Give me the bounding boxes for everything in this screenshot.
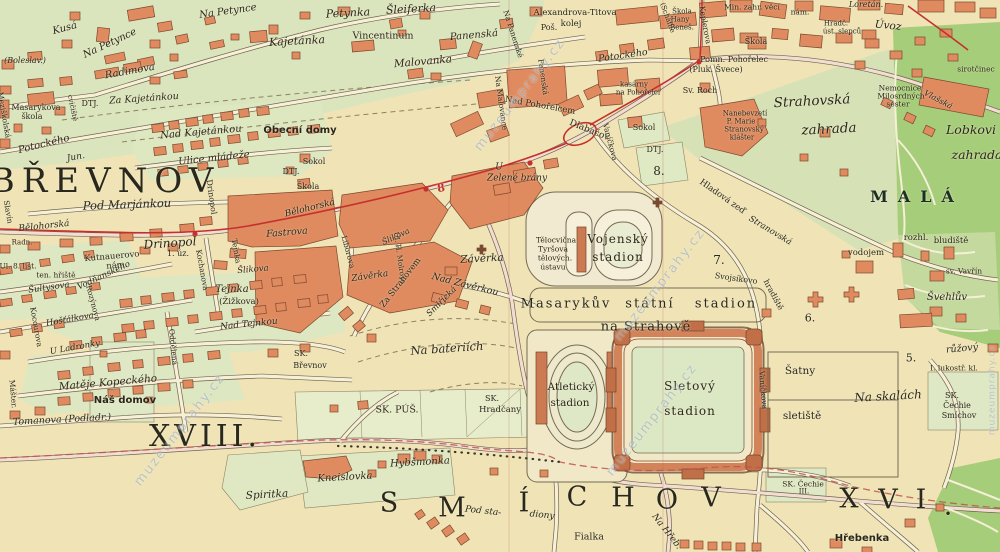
building — [820, 129, 830, 137]
building — [218, 159, 229, 167]
building — [158, 356, 171, 365]
building — [635, 78, 660, 93]
building — [885, 3, 904, 15]
building — [210, 311, 223, 320]
building — [918, 0, 944, 12]
building — [890, 51, 902, 59]
building — [865, 39, 879, 48]
building — [856, 261, 873, 273]
building — [286, 167, 294, 174]
building — [308, 124, 321, 133]
building — [862, 547, 872, 552]
building — [169, 120, 180, 129]
building — [248, 131, 259, 140]
building — [948, 54, 958, 61]
building — [752, 543, 761, 551]
building — [0, 298, 12, 307]
building — [35, 407, 45, 415]
building — [619, 43, 634, 54]
building — [272, 278, 283, 287]
building — [62, 40, 72, 48]
building — [597, 68, 628, 88]
building — [358, 401, 369, 410]
building — [936, 504, 944, 511]
building — [58, 397, 70, 406]
building — [694, 541, 703, 549]
building — [758, 119, 766, 126]
building — [930, 271, 944, 281]
building — [158, 383, 170, 392]
building — [90, 237, 102, 245]
building-block — [507, 66, 568, 108]
building — [921, 251, 929, 261]
building — [22, 294, 33, 302]
building — [83, 393, 93, 402]
building — [184, 290, 195, 299]
building — [800, 34, 823, 48]
building — [120, 298, 133, 307]
building — [20, 262, 31, 270]
building — [178, 165, 189, 173]
building — [83, 367, 94, 376]
sletovy-stadion-field — [632, 347, 744, 453]
building — [32, 324, 43, 332]
building — [530, 7, 542, 16]
building — [150, 40, 160, 48]
building — [842, 251, 850, 258]
building — [338, 7, 350, 15]
building — [108, 362, 121, 371]
building — [912, 69, 922, 77]
building — [14, 124, 22, 132]
building — [157, 21, 172, 32]
building — [186, 117, 199, 126]
building — [398, 454, 410, 463]
building — [988, 344, 998, 352]
building — [300, 344, 310, 352]
building-block — [339, 183, 448, 248]
building — [210, 137, 221, 146]
map-graphics — [0, 0, 1000, 552]
building — [730, 0, 752, 12]
building — [830, 539, 842, 548]
map-canvas: KusáNa PetynceNa Petynce(Boleslav.)Radim… — [0, 0, 1000, 552]
building — [133, 386, 143, 395]
building — [712, 28, 735, 42]
building — [254, 305, 267, 314]
building — [431, 73, 441, 80]
building — [54, 320, 65, 328]
building — [55, 107, 65, 115]
building — [158, 168, 169, 176]
building — [100, 351, 107, 357]
building — [174, 70, 188, 79]
building — [173, 143, 184, 152]
building — [120, 233, 133, 242]
building — [0, 245, 10, 253]
building — [915, 37, 925, 45]
building — [62, 254, 75, 263]
building — [0, 266, 12, 275]
building — [855, 61, 865, 69]
building — [862, 30, 876, 39]
building — [232, 309, 243, 318]
building — [66, 286, 77, 294]
building — [136, 330, 147, 339]
building — [398, 30, 406, 36]
building — [90, 282, 101, 290]
building — [900, 313, 933, 328]
building — [188, 315, 199, 324]
building — [238, 156, 249, 164]
building — [183, 380, 193, 389]
building — [647, 38, 664, 50]
building — [203, 114, 214, 123]
building — [378, 461, 386, 468]
building — [191, 140, 204, 149]
sk-cechie-smichov-field — [928, 372, 998, 430]
building — [150, 77, 160, 84]
building — [60, 76, 73, 85]
building — [955, 2, 975, 12]
building — [168, 244, 178, 251]
building — [70, 12, 80, 20]
building — [44, 290, 57, 299]
building — [298, 298, 311, 307]
building — [905, 519, 915, 527]
building — [257, 106, 270, 115]
building — [540, 470, 548, 477]
building — [700, 83, 710, 92]
building — [944, 247, 954, 259]
building — [268, 349, 278, 357]
building — [84, 250, 95, 258]
building — [490, 468, 498, 475]
building — [140, 247, 150, 254]
building — [214, 261, 228, 270]
building — [133, 360, 144, 369]
building — [96, 27, 109, 42]
building — [250, 30, 268, 42]
building — [268, 128, 281, 137]
building — [600, 93, 623, 106]
building — [595, 50, 608, 61]
building — [0, 351, 10, 359]
building — [440, 38, 457, 50]
building — [28, 242, 40, 250]
building — [228, 284, 239, 293]
building — [92, 337, 103, 346]
building — [898, 288, 915, 299]
building — [980, 8, 996, 18]
building — [183, 354, 194, 363]
building — [27, 92, 54, 107]
building — [28, 51, 43, 60]
building — [230, 248, 247, 258]
building — [122, 323, 135, 332]
building — [836, 33, 852, 43]
building — [58, 370, 71, 379]
building — [276, 303, 287, 312]
building — [367, 334, 376, 342]
building — [166, 317, 179, 326]
building — [0, 86, 11, 94]
building — [389, 18, 402, 29]
building — [141, 296, 152, 305]
building — [206, 286, 219, 295]
building — [42, 127, 51, 134]
building — [2, 60, 14, 69]
building — [800, 154, 808, 161]
building — [0, 139, 10, 148]
building — [795, 1, 813, 11]
building — [152, 123, 165, 132]
building — [432, 455, 442, 463]
building — [231, 34, 239, 40]
building — [762, 309, 771, 317]
building — [840, 169, 848, 176]
building — [144, 321, 155, 330]
building — [162, 292, 175, 301]
building — [10, 411, 20, 419]
building — [70, 340, 83, 349]
building — [228, 134, 241, 143]
building — [288, 126, 299, 135]
building — [420, 11, 430, 19]
building — [208, 350, 221, 359]
building — [736, 543, 745, 551]
building — [10, 328, 23, 337]
building — [708, 542, 717, 550]
building — [956, 314, 966, 322]
building — [680, 540, 689, 548]
building — [170, 54, 178, 61]
building — [368, 470, 376, 477]
building — [239, 108, 250, 117]
building — [699, 1, 726, 18]
building — [748, 37, 766, 49]
building — [628, 116, 643, 127]
building — [499, 18, 513, 29]
building — [200, 216, 213, 225]
building — [893, 243, 903, 257]
building — [407, 68, 423, 79]
dtj-field — [636, 142, 688, 186]
building — [60, 239, 73, 247]
building — [819, 6, 850, 23]
building — [269, 25, 278, 34]
building — [300, 12, 310, 19]
building — [318, 295, 329, 304]
building — [445, 267, 457, 275]
building — [722, 542, 731, 550]
building — [543, 158, 558, 169]
building — [414, 451, 426, 460]
building — [154, 146, 167, 155]
building — [300, 154, 310, 162]
building — [40, 258, 51, 266]
building — [146, 397, 153, 403]
building — [294, 274, 307, 283]
tyrsova-telocvicna-building — [577, 227, 586, 272]
building — [772, 28, 789, 39]
building — [352, 40, 375, 52]
building — [108, 389, 120, 398]
building — [28, 78, 44, 87]
building — [221, 111, 234, 120]
building — [114, 332, 127, 341]
building — [292, 52, 300, 59]
building — [0, 100, 9, 118]
building — [858, 0, 880, 10]
building — [198, 162, 209, 170]
building — [250, 280, 263, 289]
building — [298, 178, 311, 188]
atleticky-west-stand — [536, 352, 547, 424]
building — [330, 405, 338, 412]
